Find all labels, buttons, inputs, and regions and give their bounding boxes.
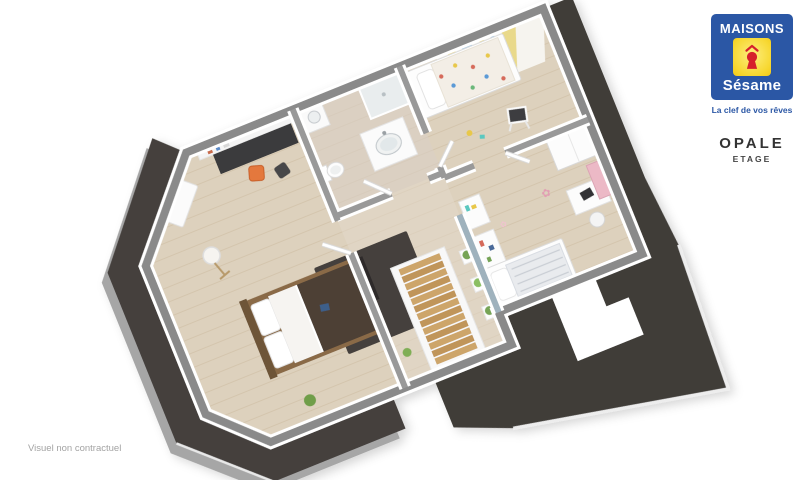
disclaimer-text: Visuel non contractuel [28, 443, 121, 454]
keyhole-icon [733, 38, 771, 76]
plan-level: ETAGE [733, 154, 772, 164]
orange-chair [249, 165, 265, 181]
plan-name: OPALE [719, 135, 785, 152]
logo-tagline: La clef de vos rêves [712, 105, 793, 115]
maisons-sesame-logo: MAISONS Sésame [711, 14, 793, 100]
floorplan-3d-render: ✿ ✿ [0, 0, 811, 480]
logo-maisons-text: MAISONS [720, 21, 784, 36]
toy [480, 135, 485, 139]
brand-block: MAISONS Sésame La clef de vos rêves OPAL… [700, 14, 804, 164]
logo-sesame-text: Sésame [723, 77, 782, 94]
floorplan-page: ✿ ✿ MAISONS S [0, 0, 811, 480]
